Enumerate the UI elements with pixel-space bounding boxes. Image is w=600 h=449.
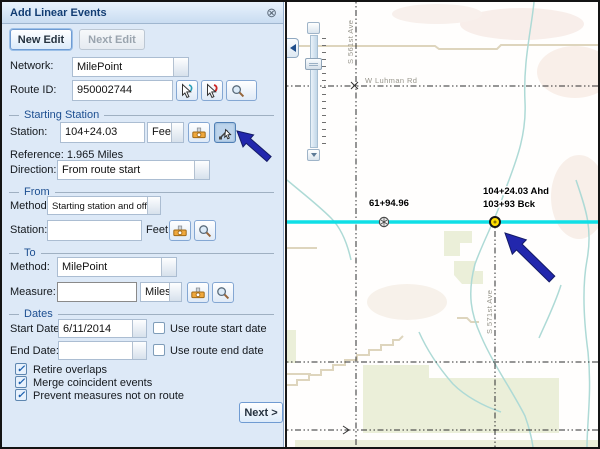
- station-tool-icon: [190, 285, 206, 301]
- pick-station-on-map-button[interactable]: [214, 122, 236, 143]
- selected-station-marker: [490, 217, 500, 227]
- reference-marker: [379, 217, 388, 226]
- zoom-slider-track[interactable]: [310, 35, 318, 148]
- start-date-input[interactable]: 6/11/2014: [58, 319, 147, 338]
- selected-back-label: 103+93 Bck: [483, 199, 536, 210]
- from-method-label: Method:: [10, 200, 50, 212]
- measure-value: [58, 283, 120, 301]
- chevron-left-icon: [290, 44, 296, 52]
- use-route-end-date-checkbox[interactable]: [153, 344, 165, 356]
- network-select[interactable]: MilePoint: [72, 57, 189, 77]
- retire-overlaps-checkbox[interactable]: ✓: [15, 363, 27, 375]
- measure-search-button[interactable]: [212, 282, 234, 303]
- clear-route-selection-button[interactable]: [201, 80, 223, 101]
- starting-station-section: Starting Station: [9, 108, 274, 122]
- chevron-down-icon[interactable]: [161, 258, 176, 276]
- zoom-in-button[interactable]: [307, 22, 320, 34]
- route-search-menu-button[interactable]: [226, 80, 257, 101]
- measure-units-value: Miles: [141, 283, 169, 301]
- network-value: MilePoint: [73, 58, 173, 76]
- zoom-slider-ticks: [322, 38, 326, 148]
- zoom-slider-thumb[interactable]: [305, 58, 322, 70]
- panel-header: Add Linear Events ⊗: [2, 2, 283, 24]
- next-button[interactable]: Next >: [239, 402, 283, 423]
- chevron-down-icon[interactable]: [132, 342, 146, 359]
- to-method-label: Method:: [10, 261, 50, 273]
- direction-label: Direction:: [10, 164, 56, 176]
- chevron-down-icon[interactable]: [132, 320, 146, 337]
- use-route-end-date-label: Use route end date: [170, 345, 264, 357]
- route-id-input[interactable]: 950002744: [72, 80, 173, 101]
- collapse-panel-tab[interactable]: [287, 38, 299, 58]
- network-label: Network:: [10, 60, 53, 72]
- station-units-value: Feet: [148, 123, 171, 142]
- measure-label: Measure:: [10, 286, 56, 298]
- from-method-value: Starting station and offset: [48, 197, 147, 214]
- end-date-label: End Date:: [10, 345, 59, 357]
- direction-select[interactable]: From route start: [57, 160, 210, 180]
- map-viewport[interactable]: 61+94.96 104+24.03 Ahd 103+93 Bck W Luhm…: [287, 2, 598, 447]
- chevron-down-icon[interactable]: [169, 283, 181, 301]
- road-label-s561st: S 561st Ave: [346, 20, 355, 64]
- from-locate-button[interactable]: [169, 220, 191, 241]
- merge-coincident-events-label: Merge coincident events: [33, 377, 152, 389]
- section-title: Starting Station: [19, 109, 104, 121]
- retire-overlaps-label: Retire overlaps: [33, 364, 107, 376]
- section-title: To: [19, 247, 41, 259]
- map-canvas: 61+94.96 104+24.03 Ahd 103+93 Bck W Luhm…: [287, 2, 598, 447]
- station-tool-icon: [191, 125, 207, 141]
- measure-locate-button[interactable]: [187, 282, 209, 303]
- end-date-value: [59, 342, 132, 359]
- chevron-down-icon[interactable]: [147, 197, 160, 214]
- chevron-down-icon[interactable]: [171, 123, 183, 142]
- search-icon: [231, 84, 245, 98]
- cursor-deselect-icon: [204, 83, 220, 99]
- route-id-label: Route ID:: [10, 84, 56, 96]
- select-route-on-map-button[interactable]: [176, 80, 198, 101]
- measure-combo[interactable]: [57, 282, 137, 302]
- chevron-down-icon: [311, 153, 317, 157]
- station-label: Station:: [10, 126, 47, 138]
- pick-on-route-icon: [217, 125, 233, 141]
- direction-value: From route start: [58, 161, 194, 179]
- end-date-input[interactable]: [58, 341, 147, 360]
- start-date-value: 6/11/2014: [59, 320, 132, 337]
- from-method-select[interactable]: Starting station and offset: [47, 196, 161, 215]
- reference-measure-label: 61+94.96: [369, 198, 409, 209]
- station-units-select[interactable]: Feet: [147, 122, 184, 143]
- measure-units-select[interactable]: Miles: [140, 282, 182, 302]
- panel-title: Add Linear Events: [10, 7, 266, 19]
- use-route-start-date-checkbox[interactable]: [153, 322, 165, 334]
- use-route-start-date-label: Use route start date: [170, 323, 267, 335]
- road-label-w-luhman: W Luhman Rd: [365, 76, 417, 85]
- station-tool-icon: [172, 223, 188, 239]
- search-icon: [198, 224, 212, 238]
- app-window: Add Linear Events ⊗ New Edit Next Edit N…: [0, 0, 600, 449]
- from-search-button[interactable]: [194, 220, 216, 241]
- vegetation-patches: [287, 231, 598, 447]
- next-edit-button[interactable]: Next Edit: [79, 29, 145, 50]
- chevron-down-icon[interactable]: [194, 161, 209, 179]
- section-title: Dates: [19, 308, 58, 320]
- minor-roads: [287, 45, 598, 385]
- from-units-label: Feet: [146, 224, 168, 236]
- selected-ahead-label: 104+24.03 Ahd: [483, 186, 549, 197]
- merge-coincident-events-checkbox[interactable]: ✓: [15, 376, 27, 388]
- add-linear-events-panel: Add Linear Events ⊗ New Edit Next Edit N…: [2, 2, 284, 447]
- to-method-value: MilePoint: [58, 258, 161, 276]
- road-label-s571st: S 571st Ave: [485, 290, 494, 334]
- new-edit-button[interactable]: New Edit: [10, 29, 72, 50]
- zoom-out-button[interactable]: [307, 149, 320, 161]
- prevent-measures-checkbox[interactable]: ✓: [15, 389, 27, 401]
- start-date-label: Start Date:: [10, 323, 63, 335]
- search-icon: [216, 286, 230, 300]
- cursor-select-icon: [179, 83, 195, 99]
- to-method-select[interactable]: MilePoint: [57, 257, 177, 277]
- prevent-measures-label: Prevent measures not on route: [33, 390, 184, 402]
- from-station-label: Station:: [10, 224, 47, 236]
- station-locate-button[interactable]: [188, 122, 210, 143]
- chevron-down-icon[interactable]: [173, 58, 188, 76]
- from-station-input[interactable]: [47, 220, 142, 241]
- close-icon[interactable]: ⊗: [266, 7, 277, 19]
- station-input[interactable]: 104+24.03: [60, 122, 145, 143]
